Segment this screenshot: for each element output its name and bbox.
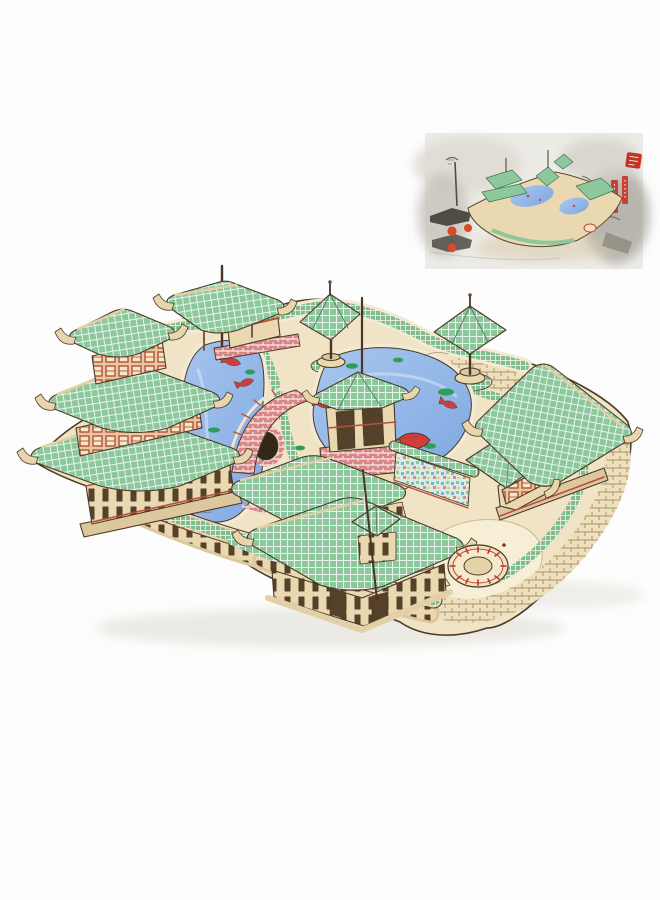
red-seal-stamp: [625, 152, 642, 169]
product-photo: [0, 0, 660, 900]
puzzle-photo-svg: [0, 0, 660, 900]
mini-well: [584, 224, 596, 232]
inset-illustration: [413, 133, 650, 269]
